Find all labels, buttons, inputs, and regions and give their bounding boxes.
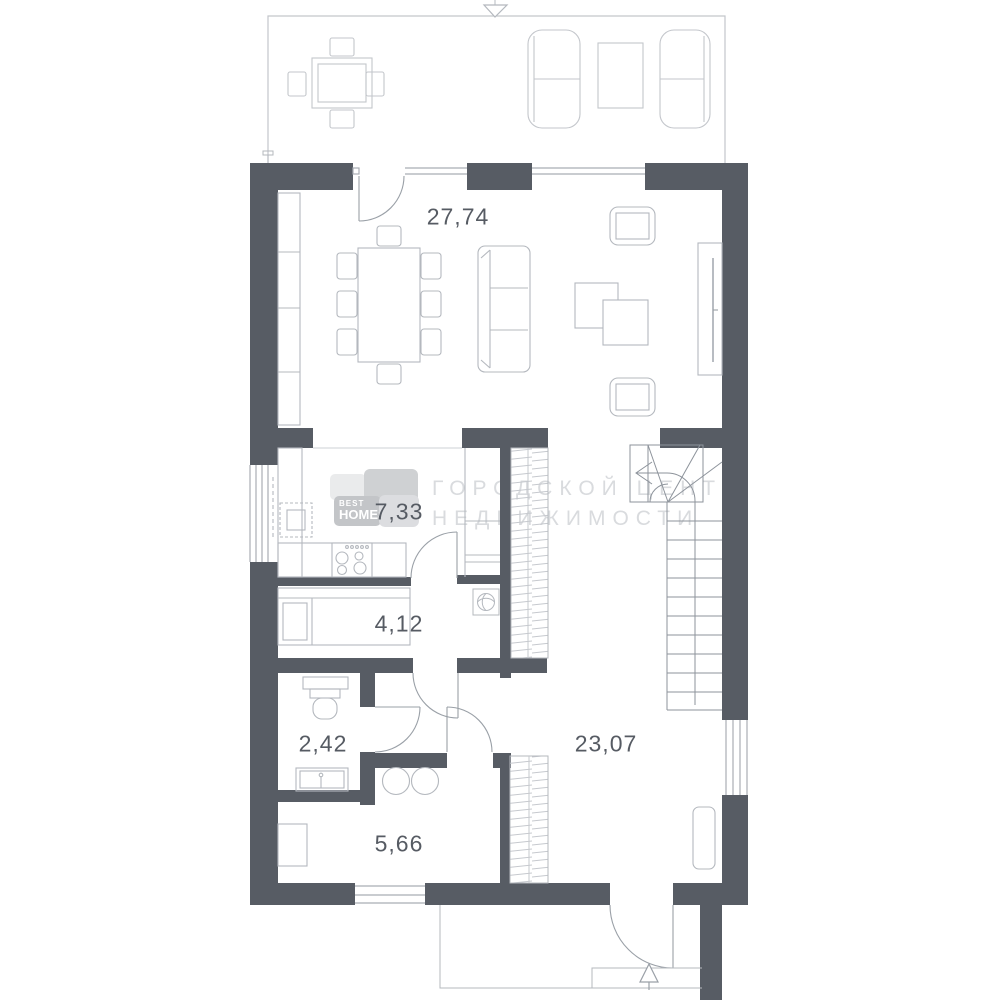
area-label-living-dining: 27,74 [427, 204, 490, 231]
terrace-entry-marker [484, 5, 507, 17]
entrance-porch [440, 905, 702, 988]
bathroom-door-swing [447, 707, 492, 752]
staircase [630, 445, 722, 710]
fan-icon [473, 589, 499, 615]
plan-drawing [0, 0, 1000, 1000]
wardrobe-upper [511, 448, 548, 658]
terrace-sofa-set [528, 30, 710, 128]
kitchen-door-swing [411, 532, 457, 578]
terrace-door-swing [359, 176, 404, 221]
area-label-bathroom: 5,66 [375, 831, 424, 858]
terrace-dining-set [288, 38, 384, 128]
stair-direction-arrow-icon [636, 462, 695, 705]
living-room-furniture [278, 193, 722, 448]
wardrobe-lower [510, 756, 548, 883]
wc-door-swing [375, 707, 420, 752]
area-label-kitchen: 7,33 [375, 499, 424, 526]
area-label-wc: 2,42 [299, 731, 348, 758]
entrance-door-swing [610, 905, 673, 968]
down-triangle-boundary-marker-icon [484, 5, 507, 17]
radiator [693, 807, 715, 869]
area-label-stair-hall: 23,07 [575, 731, 638, 758]
floor-plan: ГОРОДСКОЙ ЦЕНТР НЕДВИЖИМОСТИ [0, 0, 1000, 1000]
area-label-hallway: 4,12 [375, 611, 424, 638]
terrace-boundary [268, 0, 725, 163]
